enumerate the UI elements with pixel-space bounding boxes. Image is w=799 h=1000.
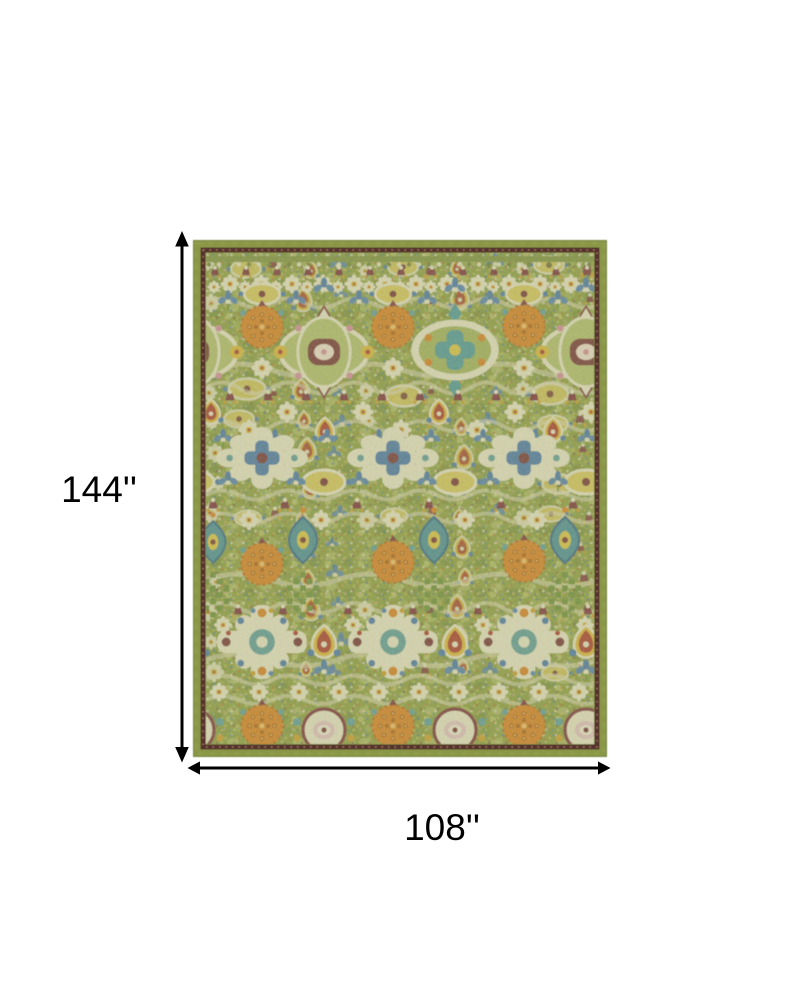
svg-text:108'': 108'' — [404, 807, 480, 848]
svg-text:144'': 144'' — [61, 469, 137, 510]
